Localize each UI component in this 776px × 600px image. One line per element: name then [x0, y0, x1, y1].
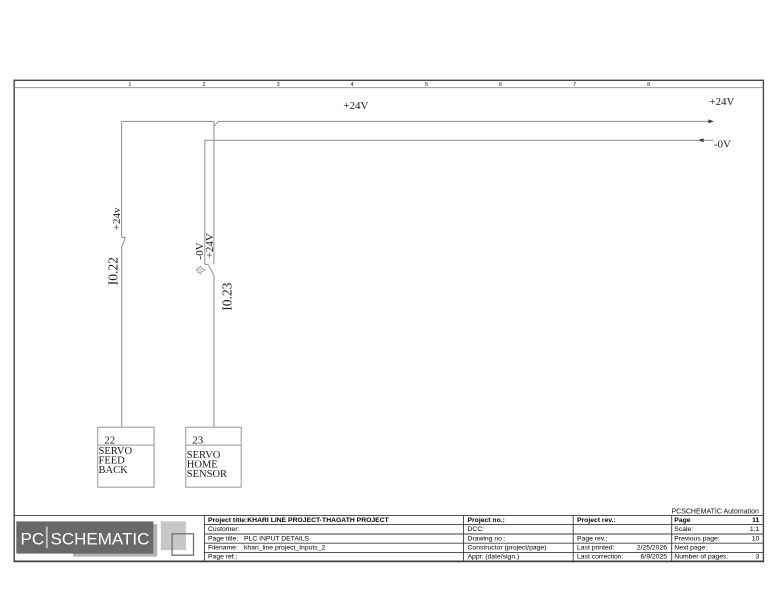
svg-text:khari_line project_Inputs_2: khari_line project_Inputs_2 [244, 545, 325, 552]
svg-text:PLC INPUT DETAILS: PLC INPUT DETAILS [244, 535, 310, 542]
svg-text:2: 2 [202, 82, 205, 88]
svg-text:Filename:: Filename: [208, 545, 238, 552]
svg-text:3: 3 [277, 82, 280, 88]
svg-text:1: 1 [128, 82, 131, 88]
svg-text:SCHEMATIC: SCHEMATIC [51, 529, 150, 548]
svg-text:6: 6 [499, 82, 502, 88]
svg-text:Previous page:: Previous page: [674, 535, 719, 542]
svg-text:8: 8 [647, 82, 650, 88]
svg-text:Drawing no.:: Drawing no.: [468, 535, 506, 542]
svg-text:4: 4 [351, 82, 354, 88]
svg-text:Scale:: Scale: [674, 526, 693, 533]
svg-text:1:1: 1:1 [750, 526, 760, 533]
svg-text:Next page:: Next page: [674, 545, 707, 552]
svg-text:PC: PC [21, 529, 45, 548]
svg-text:+24v: +24v [111, 207, 123, 230]
svg-text:I0.23: I0.23 [220, 282, 235, 310]
svg-text:23: 23 [192, 434, 204, 446]
svg-text:Number of pages:: Number of pages: [674, 554, 728, 561]
svg-text:-0V: -0V [714, 138, 731, 150]
svg-text:Page: Page [674, 517, 690, 524]
svg-text:Last correction:: Last correction: [577, 554, 624, 561]
svg-text:DCC:: DCC: [468, 526, 485, 533]
svg-text:2/25/2026: 2/25/2026 [637, 545, 667, 552]
svg-text:I0.22: I0.22 [106, 257, 121, 285]
svg-text:Project no.:: Project no.: [468, 517, 505, 524]
svg-text:Appr. (date/sign.): Appr. (date/sign.) [468, 554, 520, 561]
svg-text:10: 10 [752, 535, 760, 542]
svg-text:Constructor (project/page): Constructor (project/page) [468, 545, 547, 552]
svg-text:+24V: +24V [204, 233, 216, 258]
svg-text:Last printed:: Last printed: [577, 545, 615, 552]
svg-text:Project rev.:: Project rev.: [577, 517, 616, 524]
svg-text:Page ref.:: Page ref.: [208, 554, 238, 561]
svg-text:+24V: +24V [709, 96, 734, 108]
svg-text:PCSCHEMATIC Automation: PCSCHEMATIC Automation [671, 508, 759, 515]
svg-text:Customer:: Customer: [208, 526, 239, 533]
svg-text:3: 3 [756, 554, 760, 561]
svg-text:Page title:: Page title: [208, 535, 238, 542]
svg-text:Page rev.:: Page rev.: [577, 535, 608, 542]
svg-text:BACK: BACK [99, 465, 129, 476]
svg-text:22: 22 [104, 434, 115, 446]
svg-text:6/9/2025: 6/9/2025 [641, 554, 668, 561]
svg-text:+24V: +24V [343, 100, 368, 112]
svg-text:Project title:KHARI LINE PROJE: Project title:KHARI LINE PROJECT-THAGATH… [208, 517, 390, 524]
svg-text:SENSOR: SENSOR [187, 469, 227, 480]
svg-text:7: 7 [573, 82, 576, 88]
svg-text:11: 11 [752, 517, 759, 524]
svg-text:5: 5 [425, 82, 428, 88]
